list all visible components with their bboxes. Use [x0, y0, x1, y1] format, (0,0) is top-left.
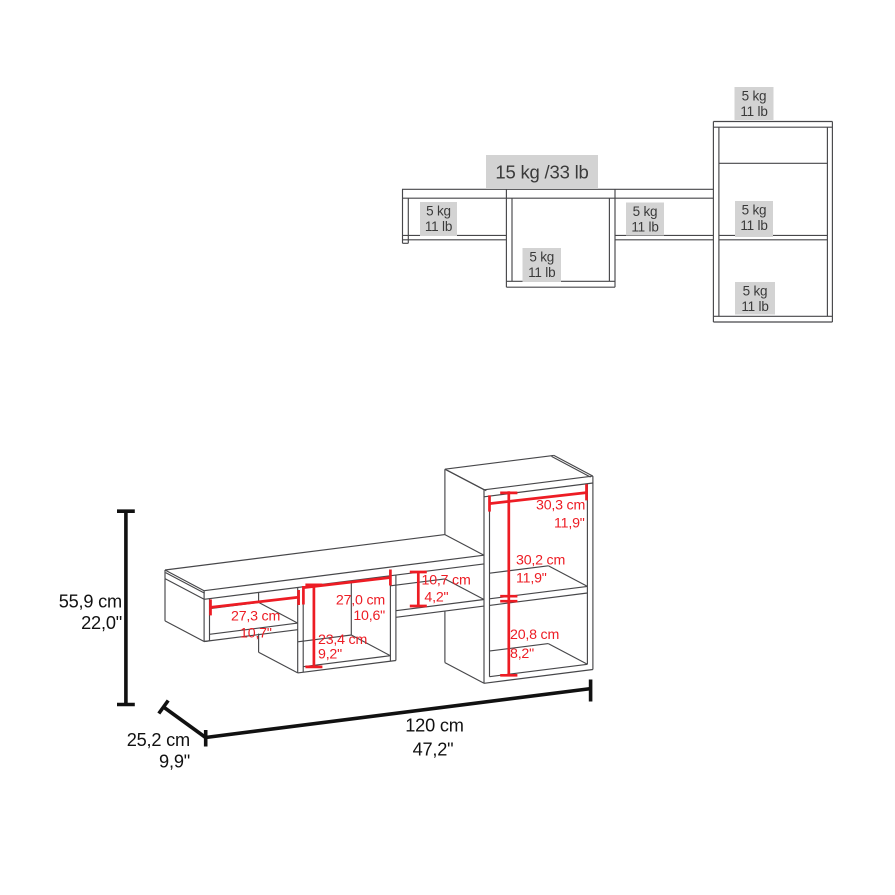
svg-text:47,2": 47,2": [413, 740, 454, 760]
svg-text:5 kg: 5 kg: [743, 284, 768, 299]
svg-text:10,7 cm: 10,7 cm: [422, 573, 471, 589]
svg-text:10,7": 10,7": [240, 626, 272, 642]
svg-text:22,0": 22,0": [81, 613, 122, 633]
svg-text:10,6": 10,6": [353, 608, 385, 624]
svg-text:27,3 cm: 27,3 cm: [231, 609, 280, 625]
svg-text:30,3 cm: 30,3 cm: [536, 498, 585, 514]
svg-text:25,2 cm: 25,2 cm: [127, 730, 190, 750]
svg-text:11 lb: 11 lb: [740, 218, 767, 233]
svg-text:11 lb: 11 lb: [631, 220, 658, 235]
svg-text:11,9": 11,9": [516, 571, 547, 587]
svg-text:5 kg: 5 kg: [742, 203, 767, 218]
svg-text:4,2": 4,2": [424, 590, 448, 606]
svg-text:30,2 cm: 30,2 cm: [516, 553, 565, 569]
svg-text:11 lb: 11 lb: [740, 104, 767, 119]
svg-text:5 kg: 5 kg: [742, 89, 767, 104]
svg-text:9,2": 9,2": [318, 647, 342, 663]
svg-text:11 lb: 11 lb: [528, 265, 555, 280]
svg-text:11 lb: 11 lb: [741, 299, 768, 314]
svg-text:11,9": 11,9": [554, 516, 585, 532]
svg-text:27,0 cm: 27,0 cm: [336, 593, 385, 609]
svg-text:11 lb: 11 lb: [425, 219, 452, 234]
svg-text:55,9 cm: 55,9 cm: [59, 592, 122, 612]
svg-text:5 kg: 5 kg: [529, 250, 554, 265]
svg-text:20,8 cm: 20,8 cm: [510, 627, 559, 643]
svg-text:15 kg /33 lb: 15 kg /33 lb: [495, 162, 588, 183]
svg-text:5 kg: 5 kg: [633, 204, 658, 219]
svg-text:8,2": 8,2": [510, 646, 534, 662]
svg-text:120 cm: 120 cm: [405, 716, 463, 736]
svg-text:5 kg: 5 kg: [426, 204, 451, 219]
svg-text:9,9": 9,9": [159, 752, 190, 772]
